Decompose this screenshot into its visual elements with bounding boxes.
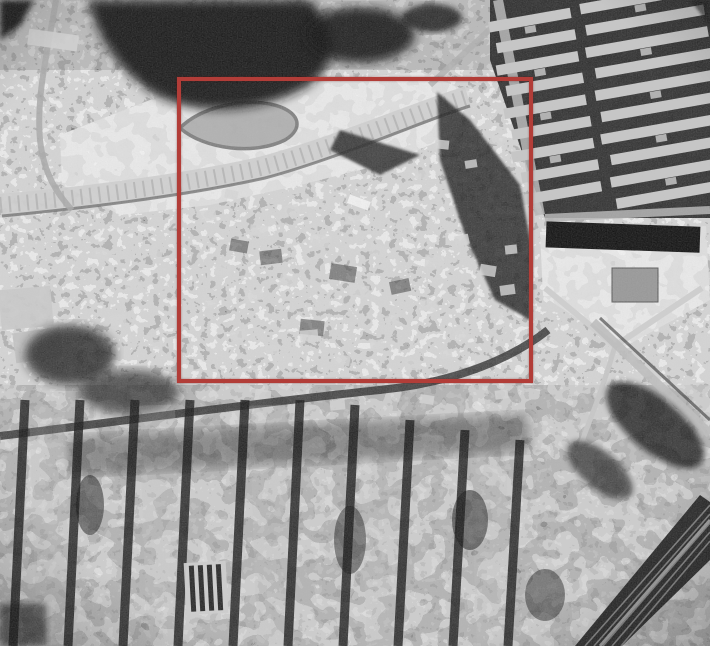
aerial-photo-figure bbox=[0, 0, 710, 646]
highlight-rectangle bbox=[177, 77, 533, 383]
